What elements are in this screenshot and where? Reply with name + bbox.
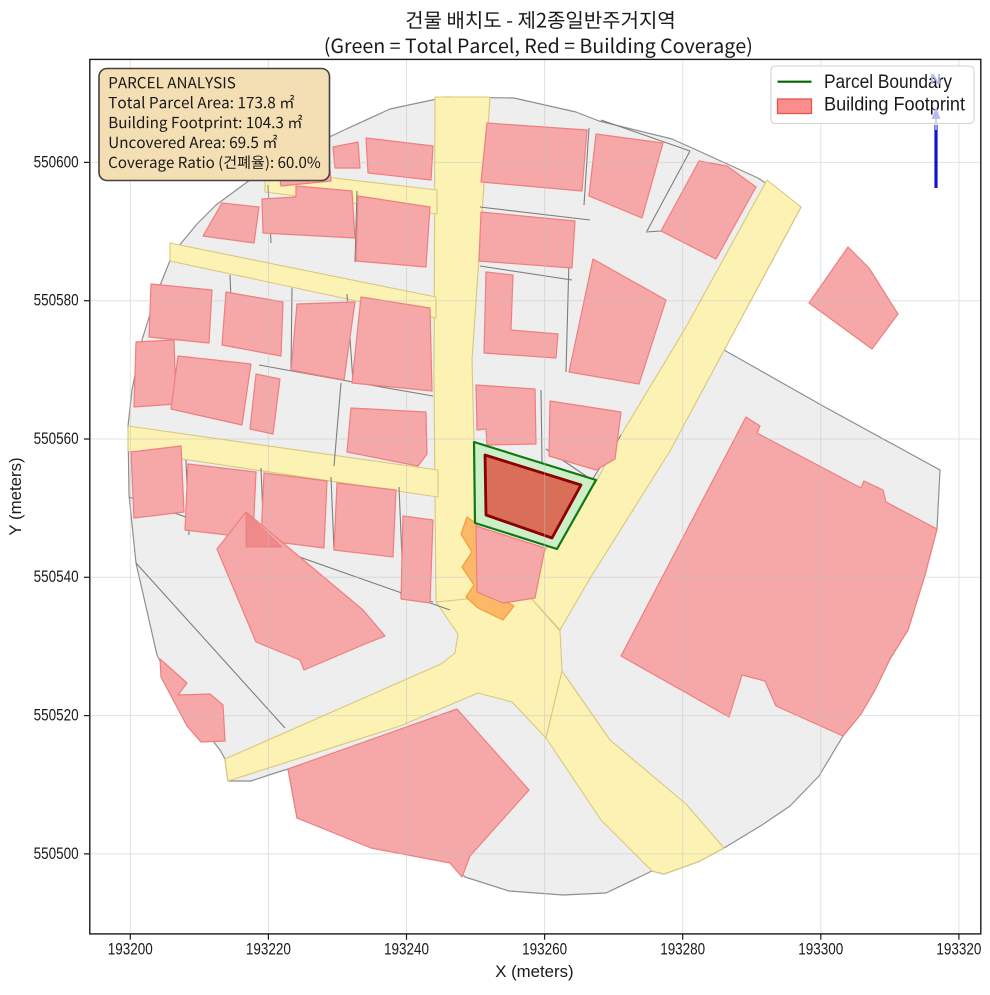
svg-text:550600: 550600 [34,153,79,171]
svg-text:193220: 193220 [246,940,291,958]
svg-text:Y (meters): Y (meters) [7,457,25,535]
svg-text:Building Footprint: Building Footprint [824,95,966,116]
svg-text:550580: 550580 [34,292,79,310]
svg-text:550540: 550540 [34,568,79,586]
svg-text:193200: 193200 [108,940,153,958]
svg-text:550500: 550500 [34,845,79,863]
svg-text:193280: 193280 [660,940,705,958]
svg-text:193240: 193240 [384,940,429,958]
svg-text:N: N [930,71,941,88]
svg-text:550520: 550520 [34,707,79,725]
svg-text:193320: 193320 [936,940,981,958]
svg-text:X (meters): X (meters) [495,963,573,981]
svg-text:550560: 550560 [34,430,79,448]
svg-text:193300: 193300 [798,940,843,958]
svg-text:193260: 193260 [522,940,567,958]
